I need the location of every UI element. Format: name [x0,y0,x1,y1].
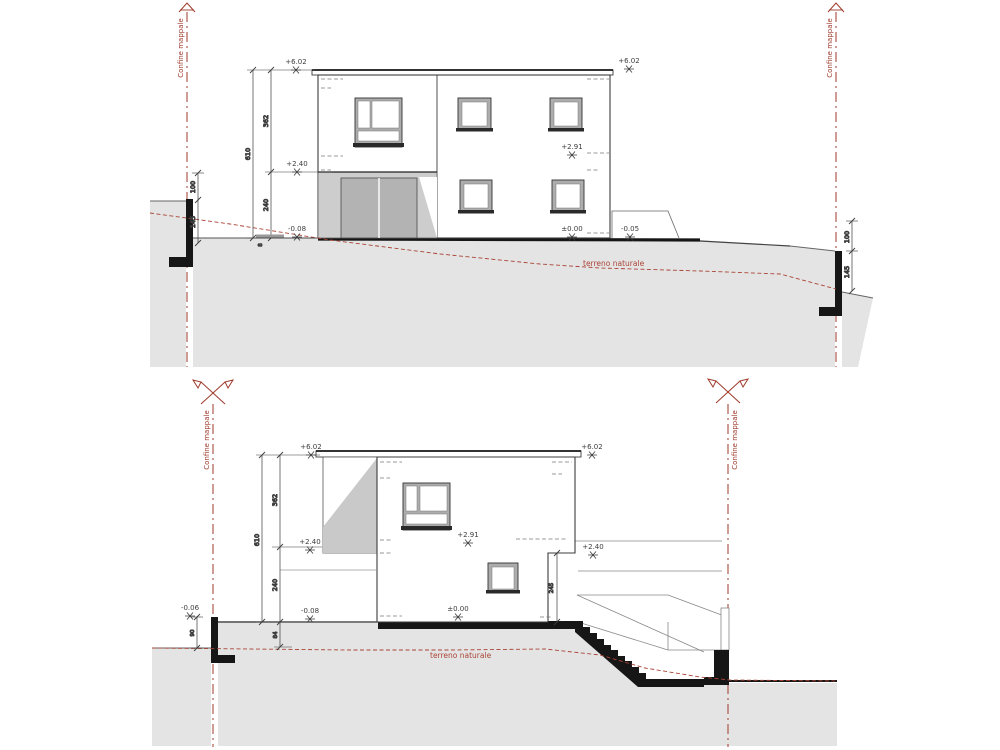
ground-line-thick [318,239,700,240]
garage-bay [318,172,437,238]
level-mid-right: +2.40 [582,543,603,551]
terrain-elev2 [152,622,837,746]
window-lower-right [550,180,586,214]
elevation-1: Confine mappale Confine mappale [150,3,873,367]
elevation-drawing: Confine mappale Confine mappale [0,0,1000,750]
boundary-label: Confine mappale [177,18,185,78]
dim-upper: 362 [271,494,279,506]
side-volume-shaded [323,457,377,553]
boundary-cross-icon [708,379,748,403]
dim-wall-l-bot: 145 [189,216,197,228]
level-top-left: +6.02 [300,443,321,451]
level-mid-center: +2.91 [457,531,478,539]
terrain-label: terreno naturale [430,651,492,660]
dim-step: 8 [258,243,264,247]
level-mid-left: +2.40 [286,160,307,168]
window-upper-right [548,98,584,132]
facade [377,457,575,622]
dim-lower: 240 [262,199,270,211]
dim-ground: 84 [273,631,279,638]
level-zero: ±0.00 [561,225,582,233]
level-minus08: -0.08 [301,607,319,615]
dim-wall-r-top: 100 [843,231,851,243]
level-minus05: -0.05 [621,225,639,233]
building-elev2 [280,451,581,622]
level-minus06: -0.06 [181,604,200,612]
level-zero: ±0.00 [447,605,468,613]
level-top-right: +6.02 [618,57,639,65]
dim-lower: 240 [271,579,279,591]
window-lower-left [458,180,494,214]
drawing-sheet: Confine mappale Confine mappale [0,0,1000,750]
window-large [401,483,452,530]
dim-upper: 362 [262,115,270,127]
dim-wall-l: 90 [190,629,196,636]
terrain-left-high [150,201,186,367]
window-upper-left [456,98,493,132]
terrain-label: terreno naturale [583,259,645,268]
terrain-main [218,623,837,746]
building-elev1 [312,70,679,238]
boundary-label: Confine mappale [731,410,739,470]
dim-total: 610 [244,148,252,160]
window-sill [401,526,452,530]
window-large [353,98,404,147]
dim-wall-r-bot: 145 [843,266,851,278]
terrace-elev2 [575,541,727,652]
window-sill [353,143,404,147]
boundary-cross-icon [193,380,233,404]
level-mid-left: +2.40 [299,538,320,546]
terrain-right-low [842,292,873,367]
dim-recess: 245 [549,582,555,593]
dim-total: 610 [253,534,261,546]
boundary-arrow-icon [179,3,195,12]
elevation-2: Confine mappale Confine mappale [152,379,837,747]
level-top-left: +6.02 [285,58,306,66]
level-top-right: +6.02 [581,443,602,451]
boundary-arrow-icon [828,3,844,12]
terrain-left-low [152,648,211,746]
level-mid-right: +2.91 [561,143,582,151]
boundary-label: Confine mappale [203,410,211,470]
terrain-main [193,238,835,367]
dim-wall-l-top: 100 [189,181,197,193]
boundary-label: Confine mappale [826,18,834,78]
level-minus08: -0.08 [288,225,306,233]
window-lower [486,563,520,594]
parapet [721,608,729,650]
